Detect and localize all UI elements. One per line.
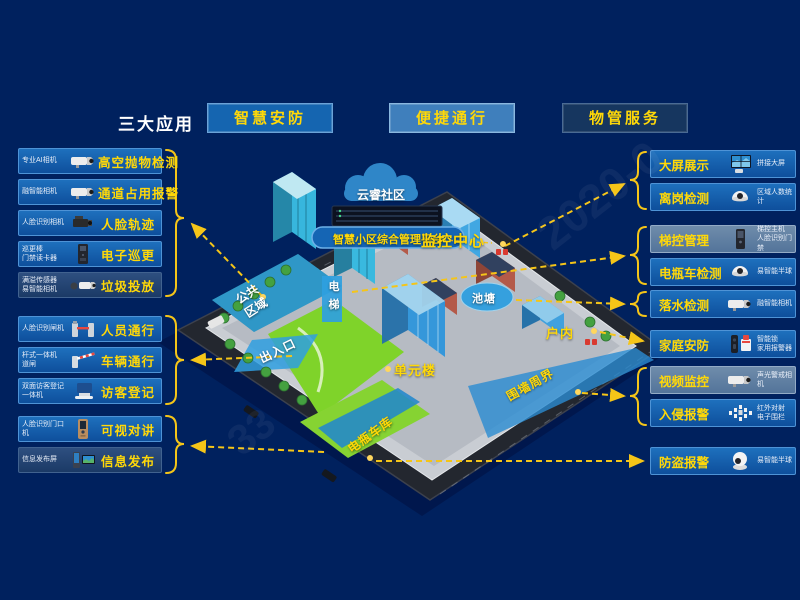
app-button-property[interactable]: 物管服务 <box>562 103 688 133</box>
left-item[interactable]: 人脸识别相机人脸轨迹 <box>18 210 162 236</box>
feature-label: 人脸轨迹 <box>98 214 158 233</box>
device-label: 易智能半球 <box>755 456 792 465</box>
label-perimeter: 围墙周界 <box>503 364 557 404</box>
elevator-host-icon <box>725 227 755 251</box>
app-button-security[interactable]: 智慧安防 <box>207 103 333 133</box>
device-label: 拼接大屏 <box>755 159 792 168</box>
device-label: 杆式一体机 道闸 <box>22 351 68 369</box>
public-area-zone <box>212 254 342 332</box>
estate-plate <box>206 208 636 480</box>
trees <box>219 265 611 405</box>
watermark: 33 <box>218 399 284 466</box>
label-public-area: 公共 区域 <box>233 282 270 321</box>
bullet-camera-icon <box>68 180 98 204</box>
dashed-arrows <box>192 184 643 461</box>
smart-lock-alarm-icon <box>725 332 755 356</box>
visitor-terminal-icon <box>68 379 98 403</box>
feature-label: 信息发布 <box>98 451 158 470</box>
right-item[interactable]: 家庭安防智能锁 家用报警器 <box>650 330 796 358</box>
fence-icon <box>725 401 755 425</box>
lawn <box>268 300 404 416</box>
feature-label: 可视对讲 <box>98 420 158 439</box>
device-label: 人脸识别门口 机 <box>22 420 68 438</box>
left-item[interactable]: 信息发布屏信息发布 <box>18 447 162 473</box>
app-button-access[interactable]: 便捷通行 <box>389 103 515 133</box>
right-group: 落水检测融智能相机 <box>650 290 796 323</box>
feature-label: 离岗检测 <box>654 188 725 207</box>
right-group: 家庭安防智能锁 家用报警器 <box>650 330 796 363</box>
sensor-camera-icon <box>68 273 98 297</box>
label-ebike-garage: 电瓶车库 <box>344 412 396 456</box>
bullet-camera-icon <box>725 292 755 316</box>
cloud-icon <box>344 163 418 201</box>
left-group: 人脸识别门口 机可视对讲信息发布屏信息发布 <box>18 416 162 478</box>
indoor-house <box>522 296 564 337</box>
feature-label: 视频监控 <box>654 371 725 390</box>
feature-label: 电瓶车检测 <box>654 263 725 282</box>
glass-tower-1 <box>273 172 316 249</box>
device-label: 融智能相机 <box>22 187 68 196</box>
device-label: 人脸识别闸机 <box>22 324 68 333</box>
left-item[interactable]: 双面访客登记 一体机访客登记 <box>18 378 162 404</box>
feature-label: 车辆通行 <box>98 351 158 370</box>
elevator-zone <box>322 276 342 322</box>
label-entrance: 出入口 <box>256 334 299 366</box>
device-label: 易智能半球 <box>755 267 792 276</box>
brick-house-3 <box>422 278 457 315</box>
server-icon <box>332 206 442 226</box>
feature-label: 高空抛物检测 <box>98 152 179 171</box>
cars <box>207 315 337 483</box>
left-item[interactable]: 人脸识别闸机人员通行 <box>18 316 162 342</box>
entrance-zone <box>234 334 318 372</box>
feature-label: 防盗报警 <box>654 452 725 471</box>
left-item[interactable]: 人脸识别门口 机可视对讲 <box>18 416 162 442</box>
dome-camera-icon <box>725 185 755 209</box>
right-group: 梯控管理梯控主机 人脸识别门禁电瓶车检测易智能半球 <box>650 225 796 291</box>
device-label: 智能锁 家用报警器 <box>755 335 792 353</box>
perimeter-zone <box>468 348 654 438</box>
feature-label: 电子巡更 <box>98 245 158 264</box>
device-label: 融智能相机 <box>755 299 792 308</box>
bullet-camera-icon <box>725 368 755 392</box>
braces <box>166 150 646 473</box>
cloud-label: 云睿社区 <box>345 186 417 203</box>
label-unit-building: 单元楼 <box>394 360 436 379</box>
turret-camera-icon <box>725 449 755 473</box>
right-item[interactable]: 落水检测融智能相机 <box>650 290 796 318</box>
anchor-dots <box>260 241 597 461</box>
left-item[interactable]: 杆式一体机 道闸车辆通行 <box>18 347 162 373</box>
glass-tower-2 <box>334 220 375 284</box>
section-title: 三大应用 <box>118 110 194 135</box>
device-label: 梯控主机 人脸识别门禁 <box>755 225 792 252</box>
right-item[interactable]: 大屏展示拼接大屏 <box>650 150 796 178</box>
platform-pill <box>312 227 464 248</box>
left-item[interactable]: 融智能相机通道占用报警 <box>18 179 162 205</box>
unit-building <box>382 274 445 357</box>
dome-camera-icon <box>725 260 755 284</box>
card-reader-icon <box>68 242 98 266</box>
feature-label: 梯控管理 <box>654 230 725 249</box>
monitor-center-building <box>431 198 480 258</box>
right-item[interactable]: 离岗检测区域人数统计 <box>650 183 796 211</box>
box-camera-icon <box>68 211 98 235</box>
device-label: 专业AI相机 <box>22 156 68 165</box>
right-item[interactable]: 电瓶车检测易智能半球 <box>650 258 796 286</box>
right-group: 防盗报警易智能半球 <box>650 447 796 480</box>
bullet-camera-icon <box>68 149 98 173</box>
right-group: 大屏展示拼接大屏离岗检测区域人数统计 <box>650 150 796 216</box>
door-station-icon <box>68 417 98 441</box>
feature-label: 入侵报警 <box>654 404 725 423</box>
feature-label: 大屏展示 <box>654 155 725 174</box>
right-item[interactable]: 梯控管理梯控主机 人脸识别门禁 <box>650 225 796 253</box>
left-group: 专业AI相机高空抛物检测融智能相机通道占用报警人脸识别相机人脸轨迹巡更棒 门禁读… <box>18 148 162 303</box>
ring-road <box>178 192 662 500</box>
device-label: 巡更棒 门禁读卡器 <box>22 245 68 263</box>
right-item[interactable]: 入侵报警红外对射 电子围栏 <box>650 399 796 427</box>
feature-label: 落水检测 <box>654 295 725 314</box>
pond-zone <box>461 283 513 311</box>
label-monitor-center: 监控中心 <box>421 230 485 251</box>
device-label: 声光警戒相机 <box>755 371 792 389</box>
feature-label: 垃圾投放 <box>98 276 158 295</box>
right-group: 视频监控声光警戒相机入侵报警红外对射 电子围栏 <box>650 366 796 432</box>
label-pond: 池塘 <box>472 290 496 306</box>
platform-label: 智慧小区综合管理平台 <box>314 231 462 247</box>
device-label: 满溢传感器 易智能相机 <box>22 276 68 294</box>
right-item[interactable]: 视频监控声光警戒相机 <box>650 366 796 394</box>
barrier-gate-icon <box>68 348 98 372</box>
device-label: 双面访客登记 一体机 <box>22 382 68 400</box>
turnstile-icon <box>68 317 98 341</box>
brick-house-2 <box>476 252 515 292</box>
feature-label: 人员通行 <box>98 320 158 339</box>
left-group: 人脸识别闸机人员通行杆式一体机 道闸车辆通行双面访客登记 一体机访客登记 <box>18 316 162 409</box>
device-label: 区域人数统计 <box>755 188 792 206</box>
brick-house-1 <box>366 212 408 255</box>
device-label: 信息发布屏 <box>22 455 68 464</box>
right-item[interactable]: 防盗报警易智能半球 <box>650 447 796 475</box>
ebike-garage-zone <box>318 388 420 448</box>
info-screens-icon <box>68 448 98 472</box>
video-wall-icon <box>725 152 755 176</box>
left-item[interactable]: 满溢传感器 易智能相机垃圾投放 <box>18 272 162 298</box>
label-elevator: 电 梯 <box>327 279 341 314</box>
device-label: 红外对射 电子围栏 <box>755 404 792 422</box>
alarm-markers <box>496 249 597 345</box>
device-label: 人脸识别相机 <box>22 218 68 227</box>
feature-label: 通道占用报警 <box>98 183 179 202</box>
feature-label: 家庭安防 <box>654 335 725 354</box>
left-item[interactable]: 巡更棒 门禁读卡器电子巡更 <box>18 241 162 267</box>
map-shadow <box>158 198 662 516</box>
label-indoor: 户内 <box>546 323 574 342</box>
feature-label: 访客登记 <box>98 382 158 401</box>
left-item[interactable]: 专业AI相机高空抛物检测 <box>18 148 162 174</box>
